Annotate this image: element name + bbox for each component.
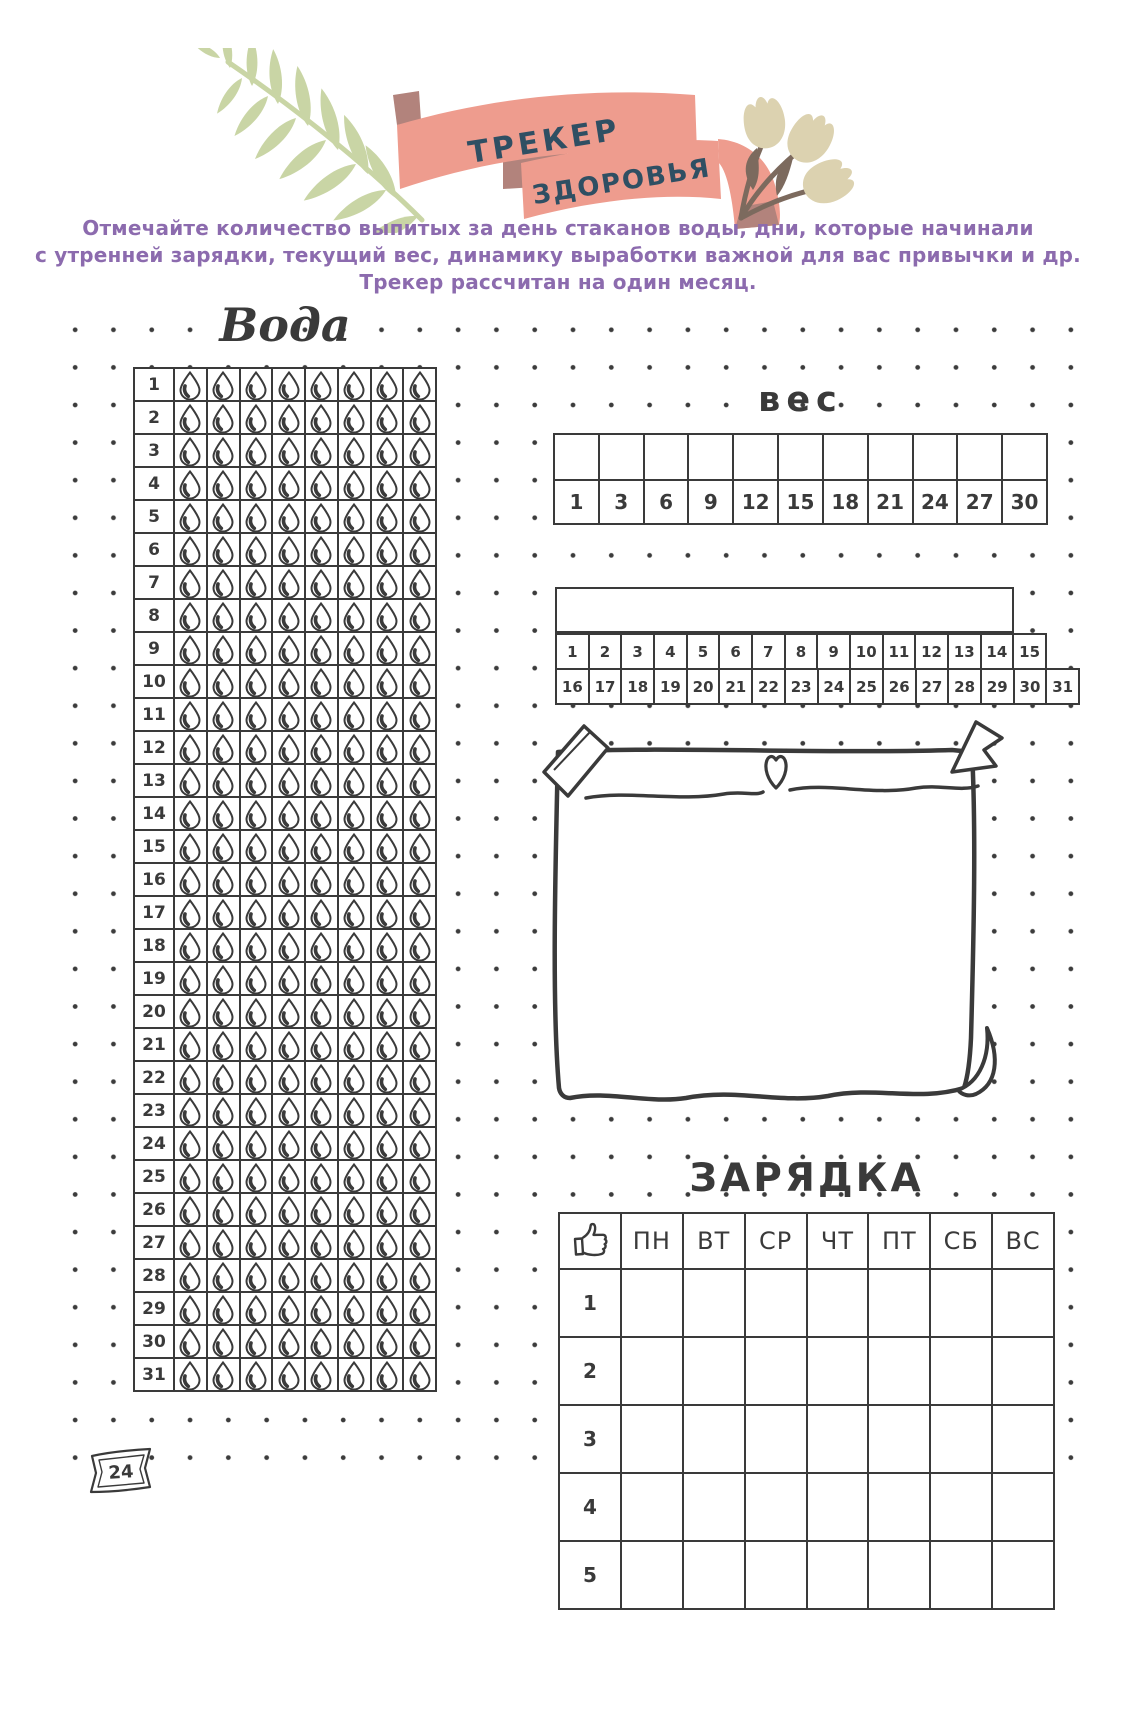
water-drop-cell[interactable] <box>240 863 273 896</box>
weight-entry-strip[interactable] <box>555 587 1014 633</box>
water-drop-cell[interactable] <box>338 830 371 863</box>
weight-entry-cell[interactable] <box>688 434 733 480</box>
water-drop-cell[interactable] <box>240 698 273 731</box>
water-drop-cell[interactable] <box>207 1259 240 1292</box>
water-drop-cell[interactable] <box>207 731 240 764</box>
water-drop-cell[interactable] <box>371 665 404 698</box>
water-drop-cell[interactable] <box>272 896 305 929</box>
water-drop-cell[interactable] <box>371 764 404 797</box>
water-drop-cell[interactable] <box>174 896 207 929</box>
water-drop-cell[interactable] <box>338 1292 371 1325</box>
water-drop-cell[interactable] <box>338 1226 371 1259</box>
weight-day-cell[interactable]: 22 <box>752 669 785 704</box>
exercise-cell[interactable] <box>621 1541 683 1609</box>
exercise-cell[interactable] <box>807 1541 869 1609</box>
water-drop-cell[interactable] <box>305 1226 338 1259</box>
water-drop-cell[interactable] <box>371 1028 404 1061</box>
water-drop-cell[interactable] <box>305 797 338 830</box>
weight-entry-cell[interactable] <box>554 434 599 480</box>
water-drop-cell[interactable] <box>403 764 436 797</box>
water-drop-cell[interactable] <box>174 632 207 665</box>
water-drop-cell[interactable] <box>371 929 404 962</box>
water-drop-cell[interactable] <box>338 434 371 467</box>
water-drop-cell[interactable] <box>305 467 338 500</box>
water-drop-cell[interactable] <box>305 1160 338 1193</box>
weight-day-cell[interactable]: 27 <box>916 669 949 704</box>
water-drop-cell[interactable] <box>403 1061 436 1094</box>
water-drop-cell[interactable] <box>338 764 371 797</box>
water-drop-cell[interactable] <box>371 698 404 731</box>
water-drop-cell[interactable] <box>403 929 436 962</box>
water-drop-cell[interactable] <box>305 1259 338 1292</box>
water-drop-cell[interactable] <box>174 401 207 434</box>
water-drop-cell[interactable] <box>371 467 404 500</box>
water-drop-cell[interactable] <box>403 500 436 533</box>
water-drop-cell[interactable] <box>240 1028 273 1061</box>
weight-day-cell[interactable]: 20 <box>687 669 720 704</box>
exercise-cell[interactable] <box>807 1405 869 1473</box>
water-drop-cell[interactable] <box>305 434 338 467</box>
water-drop-cell[interactable] <box>338 731 371 764</box>
water-drop-cell[interactable] <box>272 665 305 698</box>
water-drop-cell[interactable] <box>174 434 207 467</box>
weight-day-cell[interactable]: 12 <box>915 634 948 669</box>
water-drop-cell[interactable] <box>207 1094 240 1127</box>
water-drop-cell[interactable] <box>305 731 338 764</box>
exercise-cell[interactable] <box>683 1337 745 1405</box>
water-drop-cell[interactable] <box>338 1094 371 1127</box>
water-drop-cell[interactable] <box>240 1193 273 1226</box>
weight-day-cell[interactable]: 18 <box>621 669 654 704</box>
water-drop-cell[interactable] <box>174 929 207 962</box>
water-drop-cell[interactable] <box>174 764 207 797</box>
weight-day-cell[interactable]: 29 <box>981 669 1014 704</box>
water-drop-cell[interactable] <box>272 1193 305 1226</box>
exercise-cell[interactable] <box>745 1405 807 1473</box>
water-drop-cell[interactable] <box>174 1193 207 1226</box>
weight-day-cell[interactable]: 10 <box>850 634 883 669</box>
water-drop-cell[interactable] <box>338 962 371 995</box>
water-drop-cell[interactable] <box>305 1028 338 1061</box>
water-drop-cell[interactable] <box>207 929 240 962</box>
water-drop-cell[interactable] <box>403 1028 436 1061</box>
water-drop-cell[interactable] <box>207 1160 240 1193</box>
water-drop-cell[interactable] <box>338 500 371 533</box>
weight-entry-cell[interactable] <box>957 434 1002 480</box>
water-drop-cell[interactable] <box>272 1127 305 1160</box>
water-drop-cell[interactable] <box>305 962 338 995</box>
weight-entry-cell[interactable] <box>778 434 823 480</box>
water-drop-cell[interactable] <box>338 533 371 566</box>
water-drop-cell[interactable] <box>174 1226 207 1259</box>
water-drop-cell[interactable] <box>305 1094 338 1127</box>
water-drop-cell[interactable] <box>403 665 436 698</box>
water-drop-cell[interactable] <box>272 1358 305 1391</box>
weight-day-cell[interactable]: 2 <box>589 634 622 669</box>
water-drop-cell[interactable] <box>338 599 371 632</box>
water-drop-cell[interactable] <box>272 863 305 896</box>
water-drop-cell[interactable] <box>371 995 404 1028</box>
exercise-cell[interactable] <box>807 1337 869 1405</box>
water-drop-cell[interactable] <box>240 731 273 764</box>
water-drop-cell[interactable] <box>403 401 436 434</box>
water-drop-cell[interactable] <box>174 1358 207 1391</box>
water-drop-cell[interactable] <box>338 632 371 665</box>
water-drop-cell[interactable] <box>240 533 273 566</box>
water-drop-cell[interactable] <box>371 962 404 995</box>
exercise-cell[interactable] <box>683 1269 745 1337</box>
water-drop-cell[interactable] <box>305 896 338 929</box>
water-drop-cell[interactable] <box>207 1127 240 1160</box>
water-drop-cell[interactable] <box>207 764 240 797</box>
weight-day-cell[interactable]: 15 <box>1013 634 1046 669</box>
water-drop-cell[interactable] <box>403 1259 436 1292</box>
water-drop-cell[interactable] <box>174 962 207 995</box>
water-drop-cell[interactable] <box>240 1127 273 1160</box>
water-drop-cell[interactable] <box>371 1160 404 1193</box>
water-drop-cell[interactable] <box>338 1127 371 1160</box>
exercise-cell[interactable] <box>683 1405 745 1473</box>
water-drop-cell[interactable] <box>305 1127 338 1160</box>
water-drop-cell[interactable] <box>305 401 338 434</box>
water-drop-cell[interactable] <box>174 665 207 698</box>
water-drop-cell[interactable] <box>338 1160 371 1193</box>
water-drop-cell[interactable] <box>207 797 240 830</box>
water-drop-cell[interactable] <box>174 566 207 599</box>
water-drop-cell[interactable] <box>338 566 371 599</box>
exercise-cell[interactable] <box>621 1405 683 1473</box>
water-drop-cell[interactable] <box>403 797 436 830</box>
exercise-cell[interactable] <box>992 1405 1054 1473</box>
water-drop-cell[interactable] <box>240 566 273 599</box>
water-drop-cell[interactable] <box>207 830 240 863</box>
water-drop-cell[interactable] <box>240 1061 273 1094</box>
water-drop-cell[interactable] <box>207 863 240 896</box>
weight-day-cell[interactable]: 16 <box>556 669 589 704</box>
weight-entry-cell[interactable] <box>868 434 913 480</box>
water-drop-cell[interactable] <box>240 995 273 1028</box>
water-drop-cell[interactable] <box>207 401 240 434</box>
water-drop-cell[interactable] <box>240 1094 273 1127</box>
weight-day-cell[interactable]: 7 <box>752 634 785 669</box>
water-drop-cell[interactable] <box>207 1193 240 1226</box>
water-drop-cell[interactable] <box>207 995 240 1028</box>
water-drop-cell[interactable] <box>174 1292 207 1325</box>
water-drop-cell[interactable] <box>240 599 273 632</box>
water-drop-cell[interactable] <box>240 434 273 467</box>
water-drop-cell[interactable] <box>272 731 305 764</box>
water-drop-cell[interactable] <box>371 797 404 830</box>
water-drop-cell[interactable] <box>272 698 305 731</box>
weight-day-cell[interactable]: 8 <box>785 634 818 669</box>
water-drop-cell[interactable] <box>240 632 273 665</box>
exercise-cell[interactable] <box>930 1405 992 1473</box>
water-drop-cell[interactable] <box>240 896 273 929</box>
exercise-cell[interactable] <box>868 1337 930 1405</box>
water-drop-cell[interactable] <box>207 962 240 995</box>
water-drop-cell[interactable] <box>305 1193 338 1226</box>
water-drop-cell[interactable] <box>338 929 371 962</box>
exercise-cell[interactable] <box>621 1337 683 1405</box>
weight-day-cell[interactable]: 1 <box>556 634 589 669</box>
water-drop-cell[interactable] <box>174 797 207 830</box>
water-drop-cell[interactable] <box>338 797 371 830</box>
water-drop-cell[interactable] <box>371 1193 404 1226</box>
water-drop-cell[interactable] <box>272 401 305 434</box>
water-drop-cell[interactable] <box>403 368 436 401</box>
water-drop-cell[interactable] <box>305 1358 338 1391</box>
water-drop-cell[interactable] <box>403 1325 436 1358</box>
water-drop-cell[interactable] <box>272 368 305 401</box>
water-drop-cell[interactable] <box>174 1061 207 1094</box>
exercise-cell[interactable] <box>745 1337 807 1405</box>
water-drop-cell[interactable] <box>338 1193 371 1226</box>
water-drop-cell[interactable] <box>207 599 240 632</box>
weight-day-cell[interactable]: 11 <box>883 634 916 669</box>
water-drop-cell[interactable] <box>174 533 207 566</box>
water-drop-cell[interactable] <box>272 599 305 632</box>
water-drop-cell[interactable] <box>403 1292 436 1325</box>
exercise-cell[interactable] <box>621 1269 683 1337</box>
water-drop-cell[interactable] <box>240 500 273 533</box>
water-drop-cell[interactable] <box>371 599 404 632</box>
water-drop-cell[interactable] <box>240 764 273 797</box>
water-drop-cell[interactable] <box>371 1292 404 1325</box>
exercise-cell[interactable] <box>621 1473 683 1541</box>
exercise-cell[interactable] <box>992 1473 1054 1541</box>
weight-day-cell[interactable]: 5 <box>687 634 720 669</box>
water-drop-cell[interactable] <box>207 665 240 698</box>
weight-day-cell[interactable]: 4 <box>654 634 687 669</box>
water-drop-cell[interactable] <box>174 863 207 896</box>
water-drop-cell[interactable] <box>403 995 436 1028</box>
exercise-cell[interactable] <box>745 1269 807 1337</box>
water-drop-cell[interactable] <box>338 863 371 896</box>
weight-entry-cell[interactable] <box>823 434 868 480</box>
water-drop-cell[interactable] <box>403 1160 436 1193</box>
water-drop-cell[interactable] <box>371 1127 404 1160</box>
weight-day-cell[interactable]: 24 <box>818 669 851 704</box>
water-drop-cell[interactable] <box>207 533 240 566</box>
water-drop-cell[interactable] <box>403 962 436 995</box>
water-drop-cell[interactable] <box>338 1028 371 1061</box>
water-drop-cell[interactable] <box>272 632 305 665</box>
water-drop-cell[interactable] <box>174 830 207 863</box>
water-drop-cell[interactable] <box>240 1259 273 1292</box>
weight-day-cell[interactable]: 13 <box>948 634 981 669</box>
water-drop-cell[interactable] <box>305 533 338 566</box>
weight-entry-cell[interactable] <box>913 434 958 480</box>
water-drop-cell[interactable] <box>174 1160 207 1193</box>
water-drop-cell[interactable] <box>338 467 371 500</box>
water-drop-cell[interactable] <box>207 1226 240 1259</box>
water-drop-cell[interactable] <box>240 962 273 995</box>
exercise-cell[interactable] <box>930 1541 992 1609</box>
water-drop-cell[interactable] <box>305 1325 338 1358</box>
water-drop-cell[interactable] <box>305 929 338 962</box>
water-drop-cell[interactable] <box>371 830 404 863</box>
exercise-cell[interactable] <box>745 1473 807 1541</box>
water-drop-cell[interactable] <box>371 500 404 533</box>
water-drop-cell[interactable] <box>174 467 207 500</box>
weight-entry-cell[interactable] <box>644 434 689 480</box>
water-drop-cell[interactable] <box>174 1127 207 1160</box>
water-drop-cell[interactable] <box>240 467 273 500</box>
water-drop-cell[interactable] <box>403 863 436 896</box>
water-drop-cell[interactable] <box>305 632 338 665</box>
water-drop-cell[interactable] <box>272 566 305 599</box>
weight-day-cell[interactable]: 26 <box>883 669 916 704</box>
water-drop-cell[interactable] <box>305 764 338 797</box>
water-drop-cell[interactable] <box>207 1061 240 1094</box>
water-drop-cell[interactable] <box>207 1325 240 1358</box>
water-drop-cell[interactable] <box>371 1094 404 1127</box>
weight-day-cell[interactable]: 23 <box>785 669 818 704</box>
water-drop-cell[interactable] <box>240 665 273 698</box>
weight-day-cell[interactable]: 25 <box>850 669 883 704</box>
water-drop-cell[interactable] <box>371 566 404 599</box>
water-drop-cell[interactable] <box>371 1259 404 1292</box>
water-drop-cell[interactable] <box>207 467 240 500</box>
water-drop-cell[interactable] <box>272 467 305 500</box>
water-drop-cell[interactable] <box>240 401 273 434</box>
water-drop-cell[interactable] <box>272 1292 305 1325</box>
water-drop-cell[interactable] <box>174 1028 207 1061</box>
water-drop-cell[interactable] <box>338 401 371 434</box>
weight-day-cell[interactable]: 31 <box>1046 669 1079 704</box>
water-drop-cell[interactable] <box>272 434 305 467</box>
water-drop-cell[interactable] <box>305 665 338 698</box>
water-drop-cell[interactable] <box>338 665 371 698</box>
water-drop-cell[interactable] <box>240 1325 273 1358</box>
water-drop-cell[interactable] <box>207 500 240 533</box>
weight-entry-cell[interactable] <box>1002 434 1047 480</box>
water-drop-cell[interactable] <box>240 368 273 401</box>
water-drop-cell[interactable] <box>338 698 371 731</box>
water-drop-cell[interactable] <box>403 1226 436 1259</box>
water-drop-cell[interactable] <box>338 1358 371 1391</box>
water-drop-cell[interactable] <box>403 434 436 467</box>
weight-day-cell[interactable]: 19 <box>654 669 687 704</box>
water-drop-cell[interactable] <box>174 1325 207 1358</box>
exercise-cell[interactable] <box>868 1405 930 1473</box>
water-drop-cell[interactable] <box>338 896 371 929</box>
exercise-cell[interactable] <box>745 1541 807 1609</box>
water-drop-cell[interactable] <box>403 533 436 566</box>
water-drop-cell[interactable] <box>371 731 404 764</box>
exercise-cell[interactable] <box>992 1541 1054 1609</box>
weight-day-cell[interactable]: 9 <box>817 634 850 669</box>
water-drop-cell[interactable] <box>207 368 240 401</box>
water-drop-cell[interactable] <box>371 863 404 896</box>
water-drop-cell[interactable] <box>305 500 338 533</box>
water-drop-cell[interactable] <box>338 995 371 1028</box>
water-drop-cell[interactable] <box>371 632 404 665</box>
water-drop-cell[interactable] <box>305 698 338 731</box>
water-drop-cell[interactable] <box>305 995 338 1028</box>
weight-day-cell[interactable]: 21 <box>719 669 752 704</box>
water-drop-cell[interactable] <box>305 566 338 599</box>
weight-entry-cell[interactable] <box>733 434 778 480</box>
water-drop-cell[interactable] <box>403 698 436 731</box>
water-drop-cell[interactable] <box>403 830 436 863</box>
water-drop-cell[interactable] <box>338 1259 371 1292</box>
water-drop-cell[interactable] <box>240 830 273 863</box>
water-drop-cell[interactable] <box>240 1358 273 1391</box>
water-drop-cell[interactable] <box>272 500 305 533</box>
notes-writing-area[interactable] <box>560 792 976 1070</box>
water-drop-cell[interactable] <box>272 797 305 830</box>
exercise-cell[interactable] <box>930 1337 992 1405</box>
exercise-cell[interactable] <box>868 1541 930 1609</box>
weight-day-cell[interactable]: 6 <box>719 634 752 669</box>
weight-day-cell[interactable]: 3 <box>621 634 654 669</box>
water-drop-cell[interactable] <box>272 962 305 995</box>
water-drop-cell[interactable] <box>207 896 240 929</box>
water-drop-cell[interactable] <box>207 1358 240 1391</box>
water-drop-cell[interactable] <box>240 1292 273 1325</box>
water-drop-cell[interactable] <box>403 731 436 764</box>
water-drop-cell[interactable] <box>174 500 207 533</box>
weight-entry-cell[interactable] <box>599 434 644 480</box>
exercise-cell[interactable] <box>868 1269 930 1337</box>
water-drop-cell[interactable] <box>207 632 240 665</box>
water-drop-cell[interactable] <box>207 566 240 599</box>
water-drop-cell[interactable] <box>174 731 207 764</box>
water-drop-cell[interactable] <box>371 434 404 467</box>
water-drop-cell[interactable] <box>305 830 338 863</box>
water-drop-cell[interactable] <box>403 1094 436 1127</box>
exercise-cell[interactable] <box>992 1337 1054 1405</box>
water-drop-cell[interactable] <box>403 1127 436 1160</box>
water-drop-cell[interactable] <box>272 533 305 566</box>
water-drop-cell[interactable] <box>305 1292 338 1325</box>
water-drop-cell[interactable] <box>207 1292 240 1325</box>
water-drop-cell[interactable] <box>305 1061 338 1094</box>
weight-day-cell[interactable]: 30 <box>1014 669 1047 704</box>
water-drop-cell[interactable] <box>207 1028 240 1061</box>
water-drop-cell[interactable] <box>207 434 240 467</box>
water-drop-cell[interactable] <box>174 1259 207 1292</box>
water-drop-cell[interactable] <box>403 1193 436 1226</box>
exercise-cell[interactable] <box>683 1541 745 1609</box>
water-drop-cell[interactable] <box>272 830 305 863</box>
water-drop-cell[interactable] <box>272 764 305 797</box>
water-drop-cell[interactable] <box>371 1358 404 1391</box>
exercise-cell[interactable] <box>930 1269 992 1337</box>
water-drop-cell[interactable] <box>174 995 207 1028</box>
exercise-cell[interactable] <box>807 1473 869 1541</box>
water-drop-cell[interactable] <box>240 1226 273 1259</box>
water-drop-cell[interactable] <box>371 401 404 434</box>
weight-day-cell[interactable]: 28 <box>948 669 981 704</box>
water-drop-cell[interactable] <box>338 1325 371 1358</box>
water-drop-cell[interactable] <box>305 863 338 896</box>
water-drop-cell[interactable] <box>338 1061 371 1094</box>
water-drop-cell[interactable] <box>403 896 436 929</box>
exercise-cell[interactable] <box>868 1473 930 1541</box>
water-drop-cell[interactable] <box>403 599 436 632</box>
weight-day-cell[interactable]: 14 <box>981 634 1014 669</box>
exercise-cell[interactable] <box>683 1473 745 1541</box>
water-drop-cell[interactable] <box>207 698 240 731</box>
exercise-cell[interactable] <box>807 1269 869 1337</box>
water-drop-cell[interactable] <box>305 599 338 632</box>
water-drop-cell[interactable] <box>174 698 207 731</box>
water-drop-cell[interactable] <box>371 533 404 566</box>
water-drop-cell[interactable] <box>272 1061 305 1094</box>
water-drop-cell[interactable] <box>371 1061 404 1094</box>
